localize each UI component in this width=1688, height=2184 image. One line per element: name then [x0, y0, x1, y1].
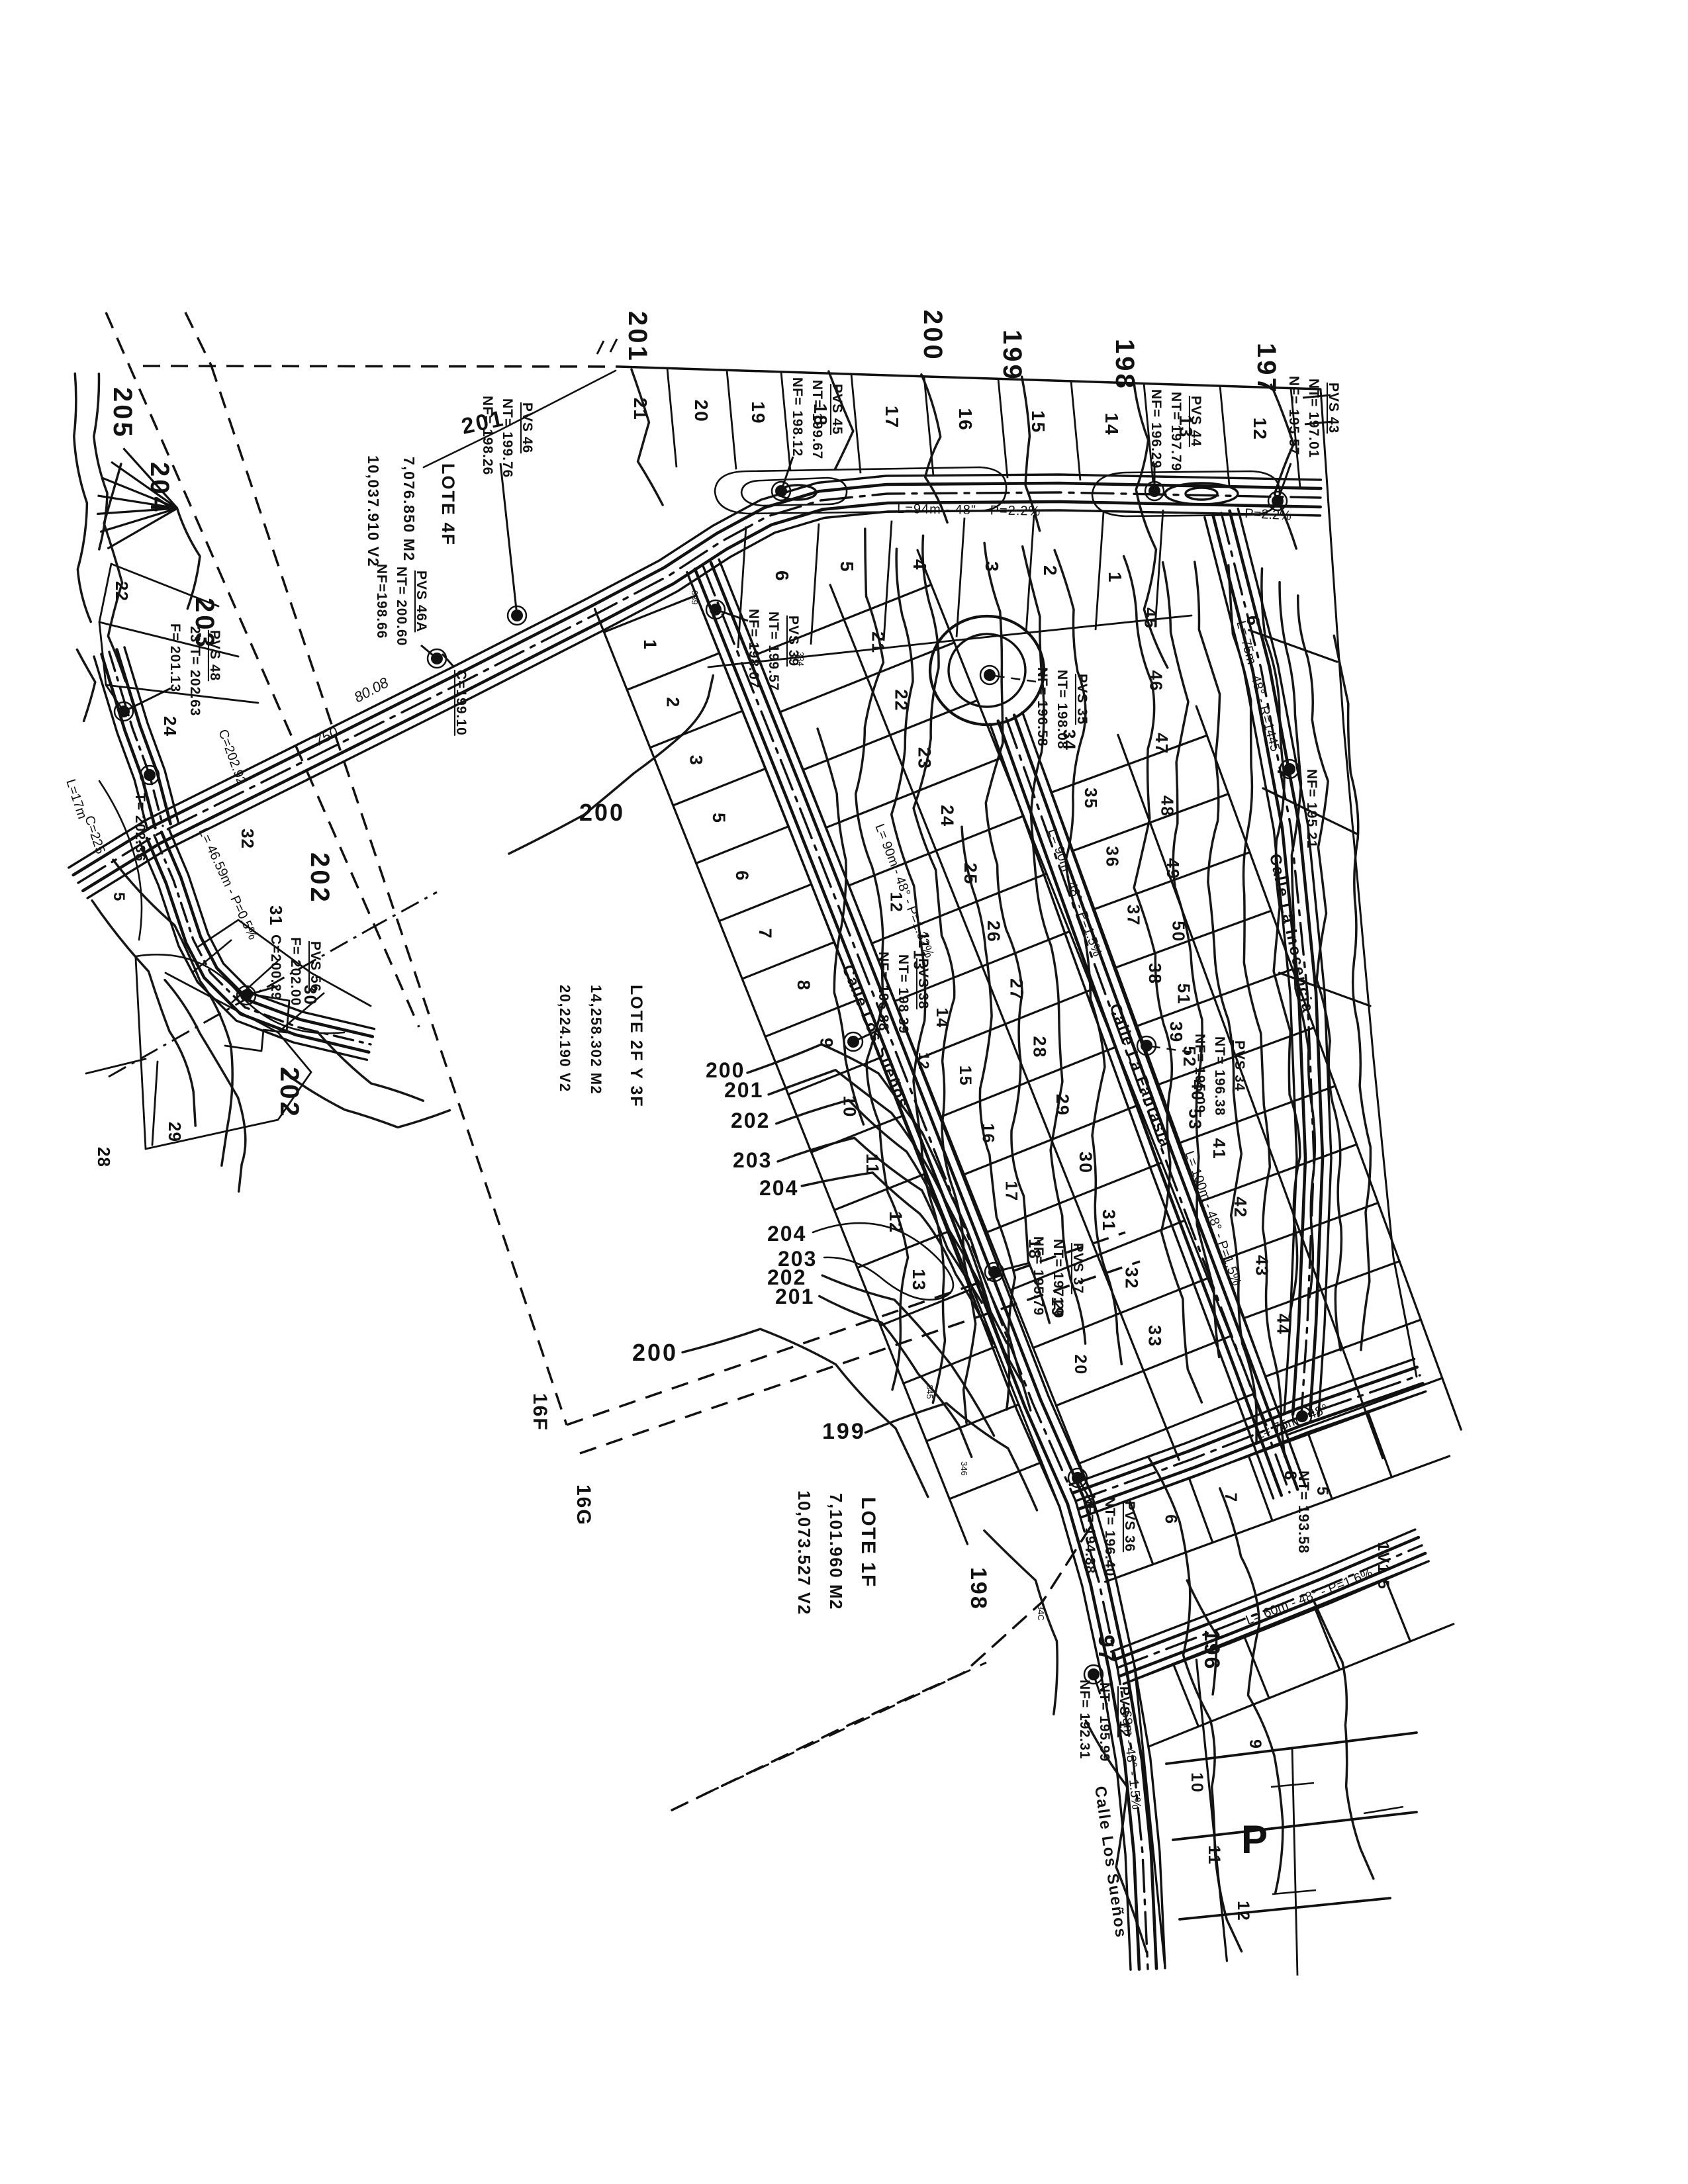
svg-text:12: 12 [915, 1052, 932, 1069]
svg-text:204: 204 [767, 1222, 806, 1246]
svg-text:196: 196 [1200, 1629, 1224, 1670]
svg-text:49: 49 [1163, 858, 1183, 880]
svg-text:199: 199 [822, 1419, 866, 1444]
svg-text:LOTE 2F Y 3F: LOTE 2F Y 3F [627, 985, 645, 1108]
svg-text:33: 33 [1145, 1325, 1164, 1347]
svg-text:16: 16 [955, 408, 976, 432]
svg-text:NF= 196.88: NF= 196.88 [876, 952, 891, 1031]
svg-text:10: 10 [1188, 1772, 1206, 1794]
svg-text:28: 28 [1029, 1036, 1049, 1058]
svg-text:3: 3 [982, 561, 1002, 573]
svg-text:16G: 16G [573, 1484, 594, 1526]
svg-text:NT= 199.57: NT= 199.57 [766, 612, 781, 691]
svg-text:201: 201 [724, 1078, 763, 1102]
svg-text:NT= 197.20: NT= 197.20 [1051, 1239, 1066, 1318]
svg-text:41: 41 [1209, 1138, 1229, 1160]
svg-text:29: 29 [165, 1122, 185, 1142]
svg-text:NF=198.66: NF=198.66 [374, 564, 389, 639]
svg-text:NF= 196.58: NF= 196.58 [1035, 667, 1050, 747]
svg-text:5: 5 [709, 813, 729, 824]
svg-text:NT= 198.08: NT= 198.08 [1055, 670, 1070, 749]
svg-text:16: 16 [979, 1123, 998, 1144]
svg-text:7,101.960 M2: 7,101.960 M2 [826, 1493, 846, 1610]
svg-text:51: 51 [1174, 983, 1194, 1005]
svg-text:NT= 199.76: NT= 199.76 [500, 398, 515, 478]
svg-text:19: 19 [748, 401, 769, 424]
svg-text:12: 12 [1250, 418, 1270, 441]
svg-text:F= 201.13: F= 201.13 [167, 623, 183, 692]
svg-text:NF= 195.57: NF= 195.57 [1286, 376, 1301, 455]
svg-text:8: 8 [794, 980, 814, 991]
svg-text:198: 198 [966, 1567, 991, 1611]
svg-text:10: 10 [839, 1095, 859, 1118]
svg-text:P=2.2%: P=2.2% [1244, 506, 1292, 523]
svg-text:97: 97 [1094, 1635, 1119, 1664]
svg-text:200: 200 [579, 799, 625, 826]
svg-text:5: 5 [837, 561, 857, 573]
svg-text:23: 23 [914, 747, 934, 770]
svg-text:NF= 198.07: NF= 198.07 [746, 609, 761, 688]
svg-text:29: 29 [1053, 1094, 1072, 1116]
svg-text:1: 1 [1105, 572, 1125, 584]
svg-text:C=199.10: C=199.10 [453, 670, 469, 736]
svg-text:26: 26 [984, 921, 1004, 943]
svg-text:28: 28 [94, 1147, 114, 1167]
svg-text:45: 45 [1141, 608, 1160, 629]
svg-text:202: 202 [275, 1067, 304, 1119]
svg-text:PVS 44: PVS 44 [1188, 396, 1203, 447]
svg-text:50: 50 [1168, 921, 1188, 942]
svg-text:10,037.910 V2: 10,037.910 V2 [365, 455, 382, 567]
svg-text:25: 25 [961, 862, 980, 885]
svg-text:T= 202.36: T= 202.36 [132, 793, 148, 862]
svg-text:6: 6 [732, 870, 752, 882]
svg-text:22: 22 [892, 690, 912, 712]
svg-text:2: 2 [1040, 565, 1060, 577]
svg-text:7,076.850 M2: 7,076.850 M2 [400, 457, 418, 562]
svg-text:15: 15 [1028, 410, 1049, 433]
svg-text:14: 14 [933, 1008, 951, 1029]
svg-text:NF= 194.88: NF= 194.88 [1082, 1494, 1098, 1574]
svg-text:32: 32 [238, 829, 258, 849]
svg-text:NT= 196.40: NT= 196.40 [1102, 1497, 1117, 1576]
svg-text:3: 3 [686, 755, 706, 766]
svg-text:LOTE 1F: LOTE 1F [857, 1497, 879, 1588]
svg-text:37: 37 [1124, 905, 1144, 927]
svg-text:43: 43 [1252, 1255, 1272, 1277]
svg-text:LOTE 4F: LOTE 4F [438, 463, 458, 546]
svg-text:24: 24 [160, 716, 180, 737]
svg-text:9: 9 [1246, 1739, 1264, 1750]
svg-text:17: 17 [1002, 1181, 1021, 1202]
svg-text:22: 22 [112, 581, 132, 602]
svg-text:NT= 198.39: NT= 198.39 [896, 954, 911, 1034]
svg-text:24: 24 [937, 805, 957, 827]
svg-text:204: 204 [145, 462, 174, 514]
svg-text:6: 6 [1162, 1514, 1180, 1525]
svg-text:14,258.302 M2: 14,258.302 M2 [588, 985, 604, 1095]
svg-text:32: 32 [1122, 1267, 1142, 1290]
svg-text:NT= 200.60: NT= 200.60 [394, 567, 409, 646]
svg-text:38: 38 [1145, 963, 1165, 985]
svg-text:NF= 198.12: NF= 198.12 [790, 377, 805, 457]
svg-text:L=94m - 48" - P=2.2%: L=94m - 48" - P=2.2% [897, 502, 1041, 519]
svg-text:201: 201 [775, 1285, 814, 1308]
svg-text:P: P [1241, 1817, 1268, 1862]
svg-text:7: 7 [755, 929, 775, 940]
svg-text:27: 27 [1007, 978, 1027, 1001]
svg-text:10,073.527 V2: 10,073.527 V2 [794, 1490, 814, 1615]
svg-text:205: 205 [108, 387, 137, 439]
svg-text:42: 42 [1231, 1197, 1250, 1218]
svg-text:13: 13 [909, 1269, 929, 1291]
svg-text:PVS 38: PVS 38 [915, 958, 931, 1009]
svg-text:NF= 198.26: NF= 198.26 [480, 396, 495, 475]
svg-text:35: 35 [1081, 788, 1101, 809]
svg-text:PVS 45: PVS 45 [829, 384, 845, 435]
svg-text:PVS 37: PVS 37 [1070, 1243, 1086, 1294]
svg-text:202: 202 [305, 852, 334, 905]
svg-text:6: 6 [772, 570, 792, 582]
svg-text:1: 1 [640, 639, 660, 651]
svg-text:PVS 35: PVS 35 [1074, 674, 1090, 725]
svg-text:46: 46 [1147, 670, 1166, 692]
svg-text:11: 11 [1205, 1845, 1223, 1865]
svg-text:204: 204 [759, 1176, 798, 1200]
svg-text:202: 202 [731, 1109, 770, 1132]
svg-text:17: 17 [882, 406, 902, 429]
svg-text:12: 12 [886, 1211, 906, 1234]
svg-text:31: 31 [266, 905, 286, 926]
svg-text:NF= 195.09: NF= 195.09 [1192, 1034, 1207, 1113]
svg-text:NT= 196.38: NT= 196.38 [1212, 1036, 1227, 1116]
svg-text:200: 200 [632, 1339, 678, 1366]
svg-text:44: 44 [1274, 1314, 1293, 1336]
svg-text:PVS 36: PVS 36 [1122, 1501, 1137, 1552]
svg-text:201: 201 [623, 311, 652, 363]
svg-text:20,224.190 V2: 20,224.190 V2 [557, 985, 573, 1093]
svg-text:C=200.29: C=200.29 [268, 934, 283, 1001]
svg-text:11: 11 [863, 1154, 882, 1175]
svg-text:15: 15 [956, 1066, 974, 1087]
svg-text:334: 334 [796, 652, 806, 666]
svg-text:9: 9 [817, 1038, 837, 1049]
svg-text:16F: 16F [529, 1393, 551, 1432]
svg-text:197: 197 [1252, 343, 1281, 395]
svg-text:30: 30 [1076, 1152, 1096, 1174]
svg-text:NF= 196.29: NF= 196.29 [1149, 389, 1164, 469]
svg-text:346: 346 [959, 1461, 969, 1476]
svg-text:NT= 199.67: NT= 199.67 [810, 380, 825, 459]
svg-text:12: 12 [1234, 1901, 1252, 1922]
svg-text:NT= 197.01: NT= 197.01 [1306, 379, 1321, 458]
svg-text:200: 200 [918, 310, 947, 362]
svg-text:NF= 195.79: NF= 195.79 [1031, 1236, 1046, 1316]
svg-text:20: 20 [691, 400, 712, 423]
svg-text:23 T= 202.63: 23 T= 202.63 [187, 626, 203, 716]
svg-text:NT= 193.58: NT= 193.58 [1295, 1471, 1312, 1554]
svg-text:34C: 34C [1036, 1605, 1046, 1621]
svg-text:5: 5 [110, 892, 128, 901]
svg-text:PVS 34: PVS 34 [1232, 1040, 1247, 1091]
svg-text:NF= 192.31: NF= 192.31 [1077, 1680, 1092, 1759]
svg-text:NT= 197.79: NT= 197.79 [1168, 392, 1184, 471]
svg-text:PVS 46: PVS 46 [520, 402, 535, 453]
svg-text:14: 14 [1102, 413, 1122, 436]
svg-text:1V1 5: 1V1 5 [1374, 1542, 1392, 1590]
svg-text:5: 5 [1313, 1486, 1331, 1496]
svg-text:PVS 46A: PVS 46A [414, 570, 429, 632]
svg-text:21: 21 [868, 631, 888, 654]
svg-text:199: 199 [998, 330, 1027, 382]
svg-text:PVS 48: PVS 48 [207, 630, 222, 681]
svg-text:339: 339 [690, 590, 700, 605]
svg-text:20: 20 [1071, 1354, 1090, 1375]
svg-text:203: 203 [733, 1148, 772, 1172]
svg-text:198: 198 [1110, 339, 1139, 391]
svg-text:21: 21 [630, 398, 651, 421]
svg-text:31: 31 [1099, 1209, 1119, 1232]
svg-text:36: 36 [1102, 846, 1122, 868]
svg-text:PVS 12: PVS 12 [1117, 1686, 1132, 1737]
svg-text:47: 47 [1152, 733, 1172, 754]
svg-text:NF= 195.21: NF= 195.21 [1304, 769, 1319, 848]
svg-text:PVS 43: PVS 43 [1326, 383, 1341, 433]
svg-text:7: 7 [1221, 1492, 1240, 1503]
svg-text:48: 48 [1158, 796, 1178, 817]
svg-text:4: 4 [910, 559, 930, 571]
svg-text:345: 345 [925, 1385, 935, 1399]
svg-text:11: 11 [915, 932, 932, 948]
svg-text:30: 30 [301, 985, 320, 1005]
svg-text:2: 2 [663, 697, 683, 708]
svg-text:39: 39 [1166, 1021, 1186, 1043]
